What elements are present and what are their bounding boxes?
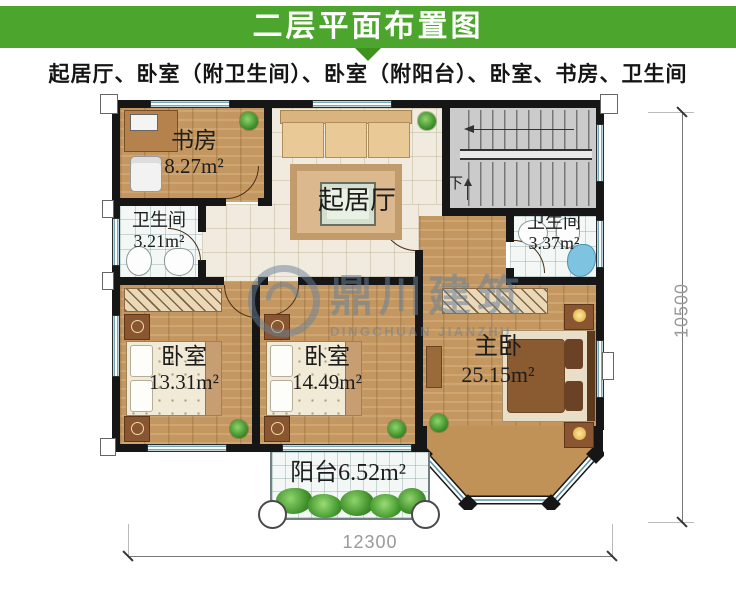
dim-ext-left	[128, 524, 129, 556]
room-area: 8.27m²	[124, 154, 264, 178]
room-name: 阳台	[290, 460, 338, 486]
bath-left-toilet	[164, 248, 194, 276]
master-wardrobe	[442, 288, 548, 314]
bedroom-left-wardrobe	[124, 288, 222, 312]
bedroom-left-plant	[230, 420, 248, 438]
balcony-column-left	[258, 500, 287, 529]
stairs-railing	[460, 149, 592, 160]
page-title: 二层平面布置图	[0, 6, 736, 48]
dim-height-label: 10500	[672, 261, 693, 361]
room-name: 卧室	[262, 344, 392, 370]
stairs-down-arrow	[464, 178, 472, 186]
pilaster-left-1	[102, 200, 114, 218]
pilaster-right-master	[602, 352, 614, 380]
title-banner: 二层平面布置图	[0, 6, 736, 48]
wall-master-left	[415, 250, 423, 452]
dim-width-label: 12300	[300, 532, 440, 553]
bedroom-mid-plant	[388, 420, 406, 438]
room-name: 卫生间	[116, 210, 202, 231]
dim-ext-bottom	[648, 522, 694, 523]
master-headboard	[587, 331, 595, 421]
balcony-label: 阳台6.52m²	[270, 460, 426, 488]
window-right-stairs	[596, 124, 604, 182]
dim-bottom-line	[128, 556, 612, 557]
bath-right-label: 卫生间 3.37m²	[508, 212, 600, 253]
pilaster-left-2	[102, 272, 114, 290]
floor-plan: 下	[112, 100, 604, 525]
lamp	[573, 427, 586, 440]
dim-ext-right	[612, 524, 613, 556]
master-nightstand-top	[564, 304, 594, 330]
master-entry-floor	[419, 216, 506, 285]
master-label: 主卧 25.15m²	[428, 334, 568, 387]
floor-plan-page: 二层平面布置图 起居厅、卧室（附卫生间）、卧室（附阳台）、卧室、书房、卫生间	[0, 0, 736, 591]
room-area: 25.15m²	[428, 362, 568, 387]
room-area: 14.49m²	[262, 370, 392, 394]
sofa-cushion-2	[325, 122, 367, 158]
room-area: 3.37m²	[508, 233, 600, 254]
balcony-door	[282, 444, 412, 452]
master-plant	[430, 414, 448, 432]
stairs-direction-line	[474, 129, 574, 130]
room-area: 3.21m²	[116, 231, 202, 252]
wall-bathright-bottom	[506, 277, 604, 285]
wall-mid-c	[298, 277, 423, 285]
stairs-lower-flight	[468, 162, 594, 206]
bedroom-left-nightstand-top	[124, 314, 150, 340]
sofa-cushion-1	[282, 122, 324, 158]
wall-mid-b	[258, 277, 268, 285]
balcony-column-right	[411, 500, 440, 529]
study-label: 书房 8.27m²	[124, 128, 264, 179]
bath-left-label: 卫生间 3.21m²	[116, 210, 202, 251]
living-plant	[418, 112, 436, 130]
room-list-subtitle: 起居厅、卧室（附卫生间）、卧室（附阳台）、卧室、书房、卫生间	[0, 58, 736, 88]
bedroom-mid-label: 卧室 14.49m²	[262, 344, 392, 395]
pilaster-bottom-left	[100, 438, 116, 456]
room-area: 13.31m²	[122, 370, 246, 394]
balcony-plant-2	[308, 494, 342, 518]
window-left-bedroom	[112, 315, 120, 377]
window-bottom-bedroom	[147, 444, 227, 452]
wall-bottom-b	[412, 444, 423, 452]
window-top-living	[312, 100, 392, 108]
sofa-cushion-3	[368, 122, 410, 158]
room-name: 卧室	[122, 344, 246, 370]
stairs-upper-flight	[468, 110, 594, 152]
bedroom-left-nightstand-bottom	[124, 416, 150, 442]
bedroom-mid-nightstand-bottom	[264, 416, 290, 442]
living-label: 起居厅	[268, 186, 446, 216]
dim-ext-top	[648, 112, 694, 113]
room-name: 主卧	[428, 334, 568, 362]
stairs-down-arrow-line	[467, 184, 468, 200]
room-name: 卫生间	[508, 212, 600, 233]
pilaster-top-left	[100, 94, 118, 114]
bedroom-left-label: 卧室 13.31m²	[122, 344, 246, 395]
bedroom-mid-nightstand-top	[264, 314, 290, 340]
pilaster-top-right	[600, 94, 618, 114]
window-top-study	[150, 100, 230, 108]
master-nightstand-bottom	[564, 422, 594, 448]
wall-mid-a	[112, 277, 224, 285]
lamp	[573, 309, 586, 322]
room-area: 6.52m²	[338, 460, 406, 486]
balcony-plant-3	[340, 490, 374, 516]
wall-study-bottom-a	[112, 198, 226, 206]
room-name: 书房	[124, 128, 264, 154]
stairs-down-label: 下	[448, 172, 463, 193]
stairs-arrow-head	[464, 125, 474, 133]
